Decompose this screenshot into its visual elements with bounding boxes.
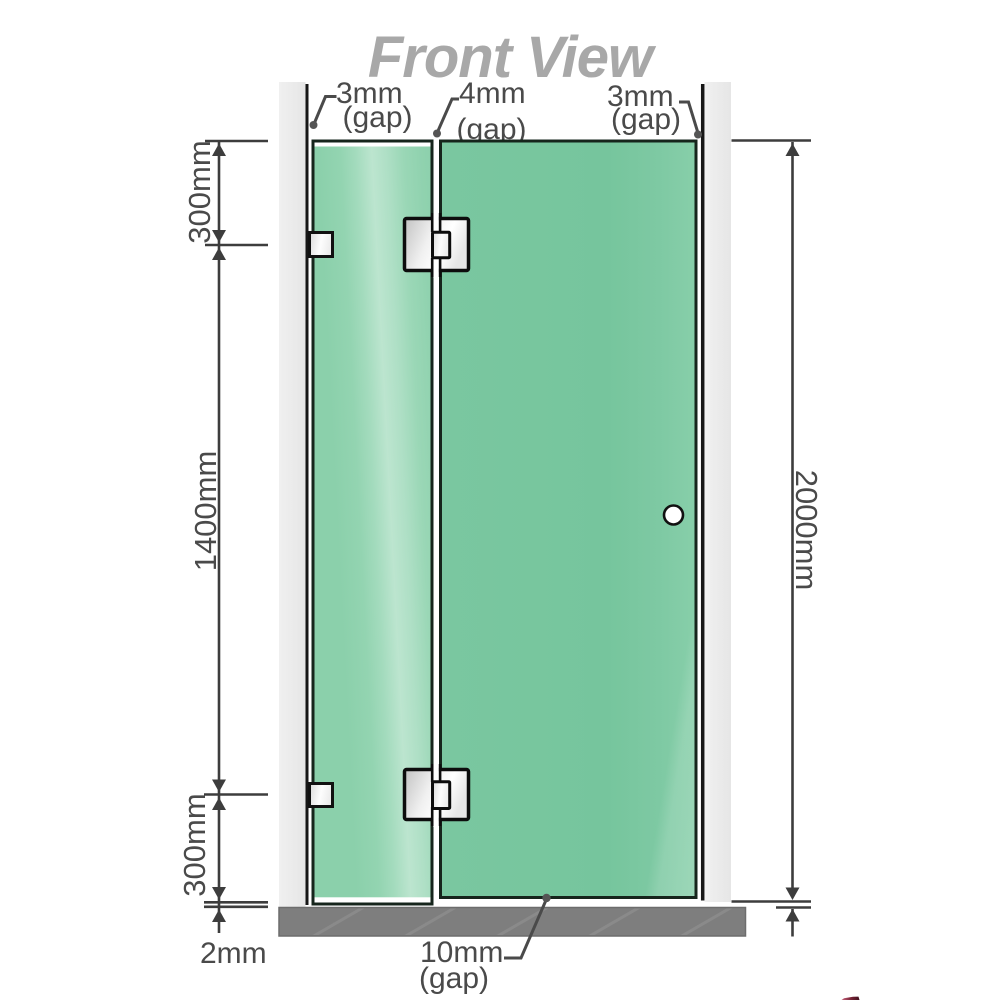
svg-text:300mm: 300mm: [182, 140, 217, 243]
svg-text:(gap): (gap): [611, 103, 681, 136]
svg-text:(gap): (gap): [342, 101, 412, 134]
svg-text:2000mm: 2000mm: [789, 470, 824, 591]
svg-text:(gap): (gap): [419, 962, 489, 995]
svg-text:4mm: 4mm: [459, 77, 526, 110]
svg-text:300mm: 300mm: [177, 793, 212, 896]
svg-text:1400mm: 1400mm: [188, 451, 223, 572]
svg-text:2mm: 2mm: [200, 937, 267, 970]
